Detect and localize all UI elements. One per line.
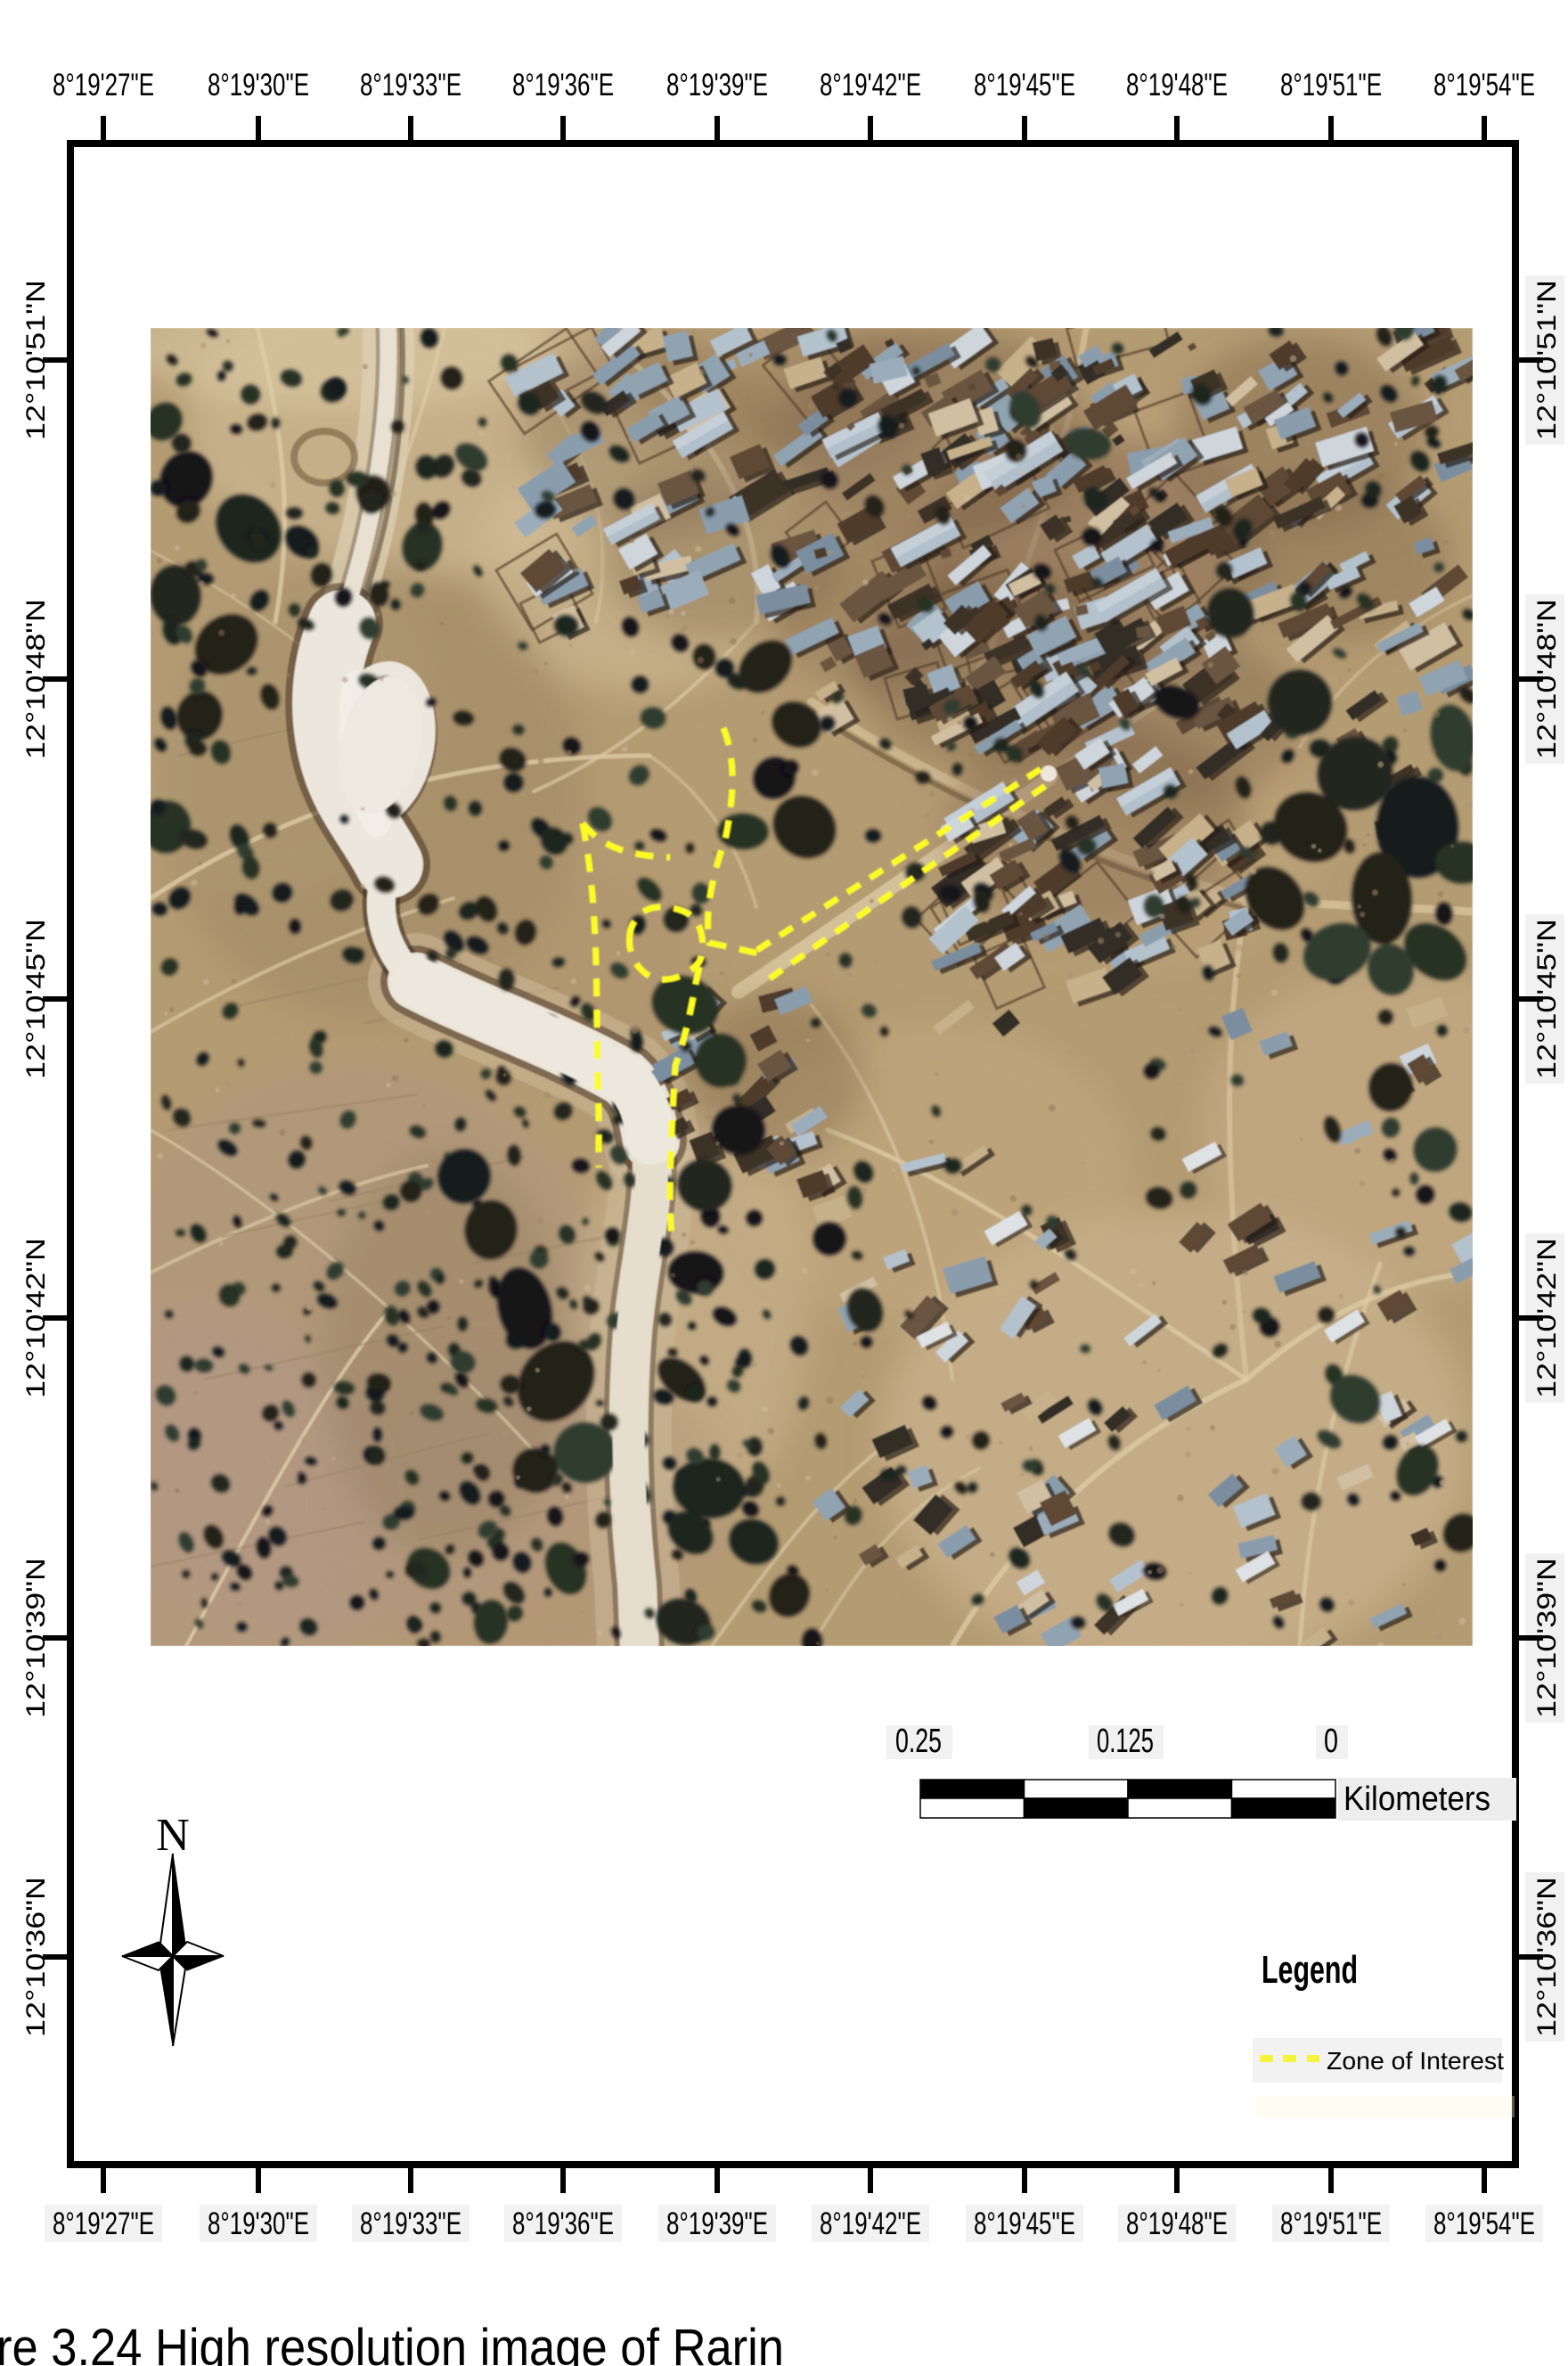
svg-text:N: N xyxy=(156,1810,190,1861)
svg-text:8°19'42"E: 8°19'42"E xyxy=(820,2206,921,2241)
svg-text:8°19'39"E: 8°19'39"E xyxy=(666,68,768,102)
svg-text:8°19'33"E: 8°19'33"E xyxy=(360,68,461,102)
svg-text:8°19'45"E: 8°19'45"E xyxy=(974,2206,1075,2241)
svg-text:Kilometers: Kilometers xyxy=(1343,1781,1490,1818)
svg-text:8°19'51"E: 8°19'51"E xyxy=(1280,2206,1382,2241)
svg-text:8°19'48"E: 8°19'48"E xyxy=(1126,2206,1228,2241)
svg-text:8°19'42"E: 8°19'42"E xyxy=(820,68,921,102)
svg-text:Zone of Interest: Zone of Interest xyxy=(1327,2047,1504,2075)
svg-text:0: 0 xyxy=(1324,1723,1338,1760)
svg-text:8°19'33"E: 8°19'33"E xyxy=(360,2206,461,2241)
svg-text:0.25: 0.25 xyxy=(895,1723,942,1760)
svg-text:8°19'48"E: 8°19'48"E xyxy=(1126,68,1228,102)
svg-text:8°19'39"E: 8°19'39"E xyxy=(666,2206,768,2241)
svg-text:8°19'36"E: 8°19'36"E xyxy=(512,68,614,102)
svg-text:8°19'30"E: 8°19'30"E xyxy=(208,68,309,102)
svg-text:8°19'30"E: 8°19'30"E xyxy=(208,2206,309,2241)
svg-text:8°19'51"E: 8°19'51"E xyxy=(1280,68,1382,102)
svg-text:8°19'54"E: 8°19'54"E xyxy=(1433,2206,1535,2241)
svg-text:8°19'45"E: 8°19'45"E xyxy=(974,68,1075,102)
svg-text:8°19'36"E: 8°19'36"E xyxy=(512,2206,614,2241)
svg-text:0.125: 0.125 xyxy=(1097,1723,1154,1760)
svg-text:Legend: Legend xyxy=(1262,1948,1358,1992)
svg-text:re 3.24 High resolution image: re 3.24 High resolution image of Rarin xyxy=(0,2319,784,2366)
svg-text:8°19'27"E: 8°19'27"E xyxy=(53,2206,154,2241)
svg-text:8°19'54"E: 8°19'54"E xyxy=(1433,68,1535,102)
svg-text:8°19'27"E: 8°19'27"E xyxy=(53,68,154,102)
